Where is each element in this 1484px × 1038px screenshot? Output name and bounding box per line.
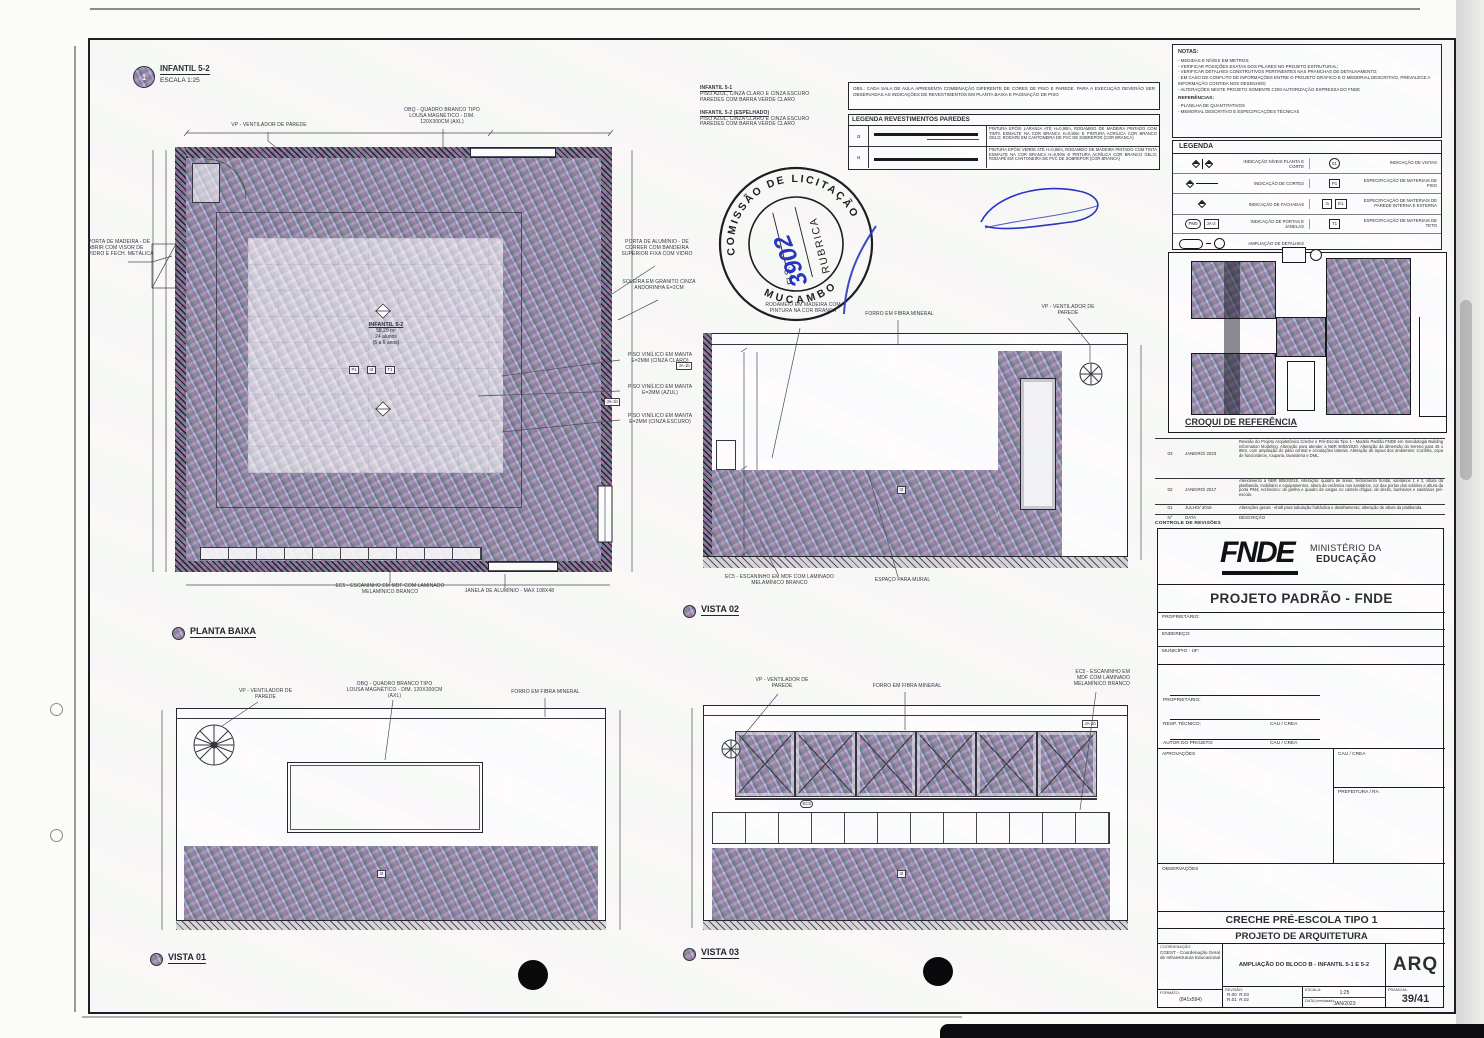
rev03-desc: Revisão do Projeto Arquitetônico Creche … [1237,439,1445,478]
vista02-ann-ec5: EC5 - ESCANINHO EM MDF COM LAMINADO MELA… [722,575,837,587]
legenda-row4-right: ESPECIFICAÇÃO DE MATERIAIS DE TETO [1359,219,1441,228]
vista02-label: VISTA 02 [701,604,739,616]
data-cell: DATA (mm/aaaa): JAN/2023 [1303,997,1386,1007]
vista01-ann-forro: FORRO EM FIBRA MINERAL [498,690,593,696]
plan-ref-chip: 1 [133,66,155,88]
sheet: 1 INFANTIL 5-2 ESCALA 1:25 JA-1b P1 I3 T… [0,0,1484,1038]
window-pane [1037,731,1097,797]
plan-ann-ec5: EC5 - ESCANINHO EM MDF COM LAMINADO MELA… [330,584,450,596]
plan-wall-right [601,147,612,572]
observations-area [1158,864,1445,912]
plan-ann-piso-azul: PISO VINÍLICO EM MANTA E=2mm (azul) [620,385,700,397]
approvals-area [1158,749,1445,864]
vista03-tag-ja1b: JA-1b [1082,720,1098,728]
level-marker-icon [1173,159,1231,169]
planta-baixa-label: PLANTA BAIXA [190,626,256,638]
vista01-ceiling-line [176,718,606,719]
sheet-subject: AMPLIAÇÃO DO BLOCO B - INFANTIL 5-1 E 5-… [1229,962,1379,968]
signature-area [1158,665,1445,749]
legenda-row5-left: AMPLIAÇÃO DE DETALHES [1231,241,1309,246]
prancha-label: PRANCHA: [1388,988,1408,992]
window-pane [976,731,1036,797]
proprietario2-label: PROPRIETÁRIO: [1163,698,1201,703]
croqui-title: CROQUI DE REFERÊNCIA [1183,417,1299,427]
vista01-chip [150,953,163,966]
binder-hole-bottom [50,829,63,842]
vista01-tag-i3: I3 [377,870,386,878]
vista02-door-glass [1020,378,1056,510]
scan-edge-left [74,46,76,1012]
teto-code: T1 [1329,219,1340,228]
vista01-wainscot [184,846,598,922]
ministry-line2: EDUCAÇÃO [1316,554,1376,565]
plan-ann-obq-3: 120x300cm (AxL) [392,120,492,126]
legenda-row-4: PM0JA-2 INDICAÇÃO DE PORTAS E JANELAS T1… [1173,215,1441,234]
vista02-tag-i3: I3 [897,486,906,494]
vista03-wainscot [712,848,1110,920]
vista02-bench [716,440,736,470]
approvals-split [1333,787,1445,788]
escala-cell: ESCALA: 1:25 [1303,986,1386,997]
croqui-left-spine [1224,261,1240,415]
window-pane [856,731,916,797]
swatch-bar [874,133,978,136]
legenda-revestimentos-title: LEGENDA REVESTIMENTOS PAREDES [849,115,1159,126]
legenda-row-1: INDICAÇÃO NÍVEIS PLANTA E CORTE 01 INDIC… [1173,154,1441,174]
prancha-cell: PRANCHA: 39/41 [1386,986,1445,1007]
porta-code: PM0 [1185,219,1200,228]
legenda-row2-left: INDICAÇÃO DE CORTES [1231,181,1309,186]
fnde-logo-bar [1222,571,1298,575]
formato-split [1158,989,1223,990]
plan-window-top [470,147,556,158]
legenda-row1-right: INDICAÇÃO DE VISTAS [1359,161,1441,166]
rev-row1-code: I3 [849,126,869,146]
croqui-boundary-h [1419,416,1447,417]
finish-note-1-line2: PAREDES COM BARRA VERDE CLARO [700,98,850,104]
plan-tag-teto: T1 [385,366,395,374]
legenda-row-2: INDICAÇÃO DE CORTES P1 ESPECIFICAÇÃO DE … [1173,174,1441,194]
prancha-value: 39/41 [1386,993,1445,1005]
punch-hole-left [518,960,548,990]
croqui-courtyard [1287,361,1315,411]
revision-row-01: 01 JULHO/ 2016 Alterações gerais - shaft… [1155,504,1445,514]
plan-tag-ja1b: JA-1b [604,398,620,406]
rev-row1-desc: PINTURA EPÓXI LARANJA ATÉ H=0,90m, RODAM… [987,126,1159,146]
plan-ann-porta-madeira: PORTA DE MADEIRA - DE ABRIR COM VISOR DE… [88,240,160,258]
legenda-row-5: AMPLIAÇÃO DE DETALHES [1173,234,1441,253]
legenda-row1-left: INDICAÇÃO NÍVEIS PLANTA E CORTE [1231,159,1309,169]
vista03-ceiling-line [703,715,1128,716]
revision-row-02: 02 JANEIRO/ 2017 Atendimento à NBR 9050/… [1155,478,1445,504]
vista02-floor [703,556,1128,568]
vista03-floor [703,920,1128,930]
finish-note-2-line2: PAREDES COM BARRA VERDE CLARO [700,122,850,128]
rev-row1-swatch [869,126,987,146]
rev-row2-desc: PINTURA EPÓXI VERDE ATÉ H=0,90m, RODAMEI… [987,147,1159,168]
vista01-ann-obq-2: LOUSA MAGNÉTICO - DIM. 120x300cm (AxL) [342,688,447,700]
rev-b: R.01 [1227,997,1237,1002]
escala-value: 1:25 [1303,990,1386,996]
referencias-title: REFERÊNCIAS: [1178,96,1436,101]
rev01-date: JULHO/ 2016 [1185,505,1237,514]
plan-ann-janela: JANELA DE ALUMÍNIO - MAX 108x48 [452,589,567,595]
scan-edge-right [1456,0,1484,1038]
cau-crea-1: CAU / CREA [1270,722,1297,727]
signature-line [1170,719,1320,720]
projeto-arquitetura-title: PROJETO DE ARQUITETURA [1158,929,1445,944]
formato-value: (841x594) [1158,997,1223,1003]
coordenacao-text: CGEST - Coordenação Geral de Infraestrut… [1158,949,1222,962]
rev02-desc: Atendimento à NBR 9050/2015. Alteração: … [1237,479,1445,504]
plan-ann-vp: VP - VENTILADOR DE PAREDE [213,123,325,129]
legenda-row2-right: ESPECIFICAÇÃO DE MATERIAIS DE PISO [1359,179,1441,188]
croqui-right-block [1326,258,1411,415]
window-pane [795,731,855,797]
vista03-chip [683,948,696,961]
legenda-box: LEGENDA INDICAÇÃO NÍVEIS PLANTA E CORTE … [1172,140,1442,250]
signature-line [1170,695,1320,696]
rev01-num: 01 [1155,505,1185,514]
pen-scribble [975,180,1115,250]
formato-label: FORMATO: [1160,991,1180,995]
proprietario-label: PROPRIETÁRIO: [1162,615,1200,620]
logo-banner: FNDE MINISTÉRIO DA EDUCAÇÃO [1158,529,1445,585]
punch-hole-right [923,957,953,986]
field-proprietario: PROPRIETÁRIO: [1158,613,1445,630]
vista01-ann-obq: OBQ - QUADRO BRANCO TIPO LOUSA MAGNÉTICO… [342,682,447,700]
ministry-line1: MINISTÉRIO DA [1310,543,1381,553]
view-number-icon: 01 [1309,158,1359,169]
revisions-table: 03 JANEIRO/ 2023 Revisão do Projeto Arqu… [1155,438,1445,520]
title-block: FNDE MINISTÉRIO DA EDUCAÇÃO PROJETO PADR… [1157,528,1444,1008]
vista02-left-wall [703,333,712,563]
swatch-line [927,139,979,140]
rev02-num: 02 [1155,479,1185,504]
binder-hole-top [50,703,63,716]
notas-item: - EM CASO DE CONFLITO DE INFORMAÇÕES ENT… [1178,75,1436,86]
referencias-item: - MEMORIAL DESCRITIVO E ESPECIFICAÇÕES T… [1178,109,1436,115]
vista02-chip [683,605,696,618]
rev03-num: 03 [1155,439,1185,478]
section-marker-icon [1173,181,1231,187]
cau-crea-3: CAU / CREA [1338,752,1365,757]
rev01-desc: Alterações gerais - shaft para tubulação… [1237,505,1445,514]
rev03-date: JANEIRO/ 2023 [1185,439,1237,478]
projeto-padrao-title: PROJETO PADRÃO - FNDE [1158,585,1445,613]
vista01-label: VISTA 01 [168,952,206,964]
window-pane [916,731,976,797]
plan-ref-scale: ESCALA 1:25 [160,77,200,84]
vista03-ann-ec5: EC5 - ESCANINHO EM MDF COM LAMINADO MELA… [1062,670,1130,688]
obs-text: OBS.: CADA SALA DE AULA APRESENTA COMBIN… [853,86,1155,97]
plan-cubby-strip [200,547,482,560]
aprovacoes-label: APROVAÇÕES [1162,752,1195,757]
janela-code: JA-2 [1204,219,1219,228]
scan-edge-bottom [82,1016,962,1018]
vista03-sill-line [735,798,1097,800]
plan-cabinet [192,163,220,203]
plan-ref-title: INFANTIL 5-2 [160,64,210,75]
croqui-watertank [1282,247,1306,263]
scanned-drawing-sheet: { "callouts": { "plan_ref_num": "1", "pl… [0,0,1484,1038]
legenda-row3-right: ESPECIFICAÇÃO DE MATERIAIS DE PAREDE INT… [1359,199,1441,208]
view-circle: 01 [1329,158,1340,169]
croqui-center-bar [1276,317,1326,357]
notas-box: NOTAS: - MEDIDAS E NÍVEIS EM METROS; - V… [1172,44,1442,138]
signature-line [1170,739,1320,740]
rev-c: R.02 [1239,997,1249,1002]
parede-ext-code: E1 [1335,199,1346,208]
facade-marker-icon [1173,201,1231,207]
vista03-tag-i3: I3 [897,870,906,878]
vista01-floor [176,920,606,930]
vista01-ann-vp: VP - VENTILADOR DE PAREDE [228,689,303,701]
plan-ann-porta-aluminio: PORTA DE ALUMÍNIO - DE CORRER COM BANDEI… [616,240,698,258]
vista02-ann-mural: ESPAÇO PARA MURAL [860,578,945,584]
plan-wall-left [175,147,186,572]
plan-inner-line [216,212,522,508]
plan-window-bottom [488,561,558,572]
vista03-ann-ec5-3: MELAMÍNICO BRANCO [1062,682,1130,688]
revision-cell: REVISÃO: R.00 R.03 R.01 R.02 [1223,986,1303,1007]
sheet-subject-cell: AMPLIAÇÃO DO BLOCO B - INFANTIL 5-1 E 5-… [1223,944,1386,986]
vista01-whiteboard-frame [290,765,480,830]
piso-code: P1 [1329,179,1340,188]
scan-smudge [1460,300,1472,480]
plan-ann-piso-claro: PISO VINÍLICO EM MANTA E=2mm (cinza clar… [620,353,700,365]
observacoes-label: OBSERVAÇÕES [1162,867,1198,872]
legenda-title: LEGENDA [1173,141,1441,154]
legenda-row-3: INDICAÇÃO DE FACHADAS I1E1 ESPECIFICAÇÃO… [1173,194,1441,215]
finish-notes: INFANTIL 5-1 PISO AZUL, CINZA CLARO E CI… [700,86,850,128]
room-ages: (5 a 6 anos) [338,340,434,346]
vista03-label: VISTA 03 [701,947,739,959]
cau-crea-2: CAU / CREA [1270,741,1297,746]
fnde-logo: FNDE [1220,536,1294,570]
vista03-ann-forro: FORRO EM FIBRA MINERAL [858,684,956,690]
creche-title: CRECHE PRÉ-ESCOLA TIPO 1 [1158,912,1445,929]
discipline-code: ARQ [1386,944,1445,986]
planta-baixa-chip [172,627,185,640]
obs-box: OBS.: CADA SALA DE AULA APRESENTA COMBIN… [848,82,1160,110]
data-value: JAN/2023 [1303,1001,1386,1007]
field-municipio: MUNICÍPIO - UF: [1158,647,1445,665]
notas-title: NOTAS: [1178,49,1436,55]
vista01-whiteboard [287,762,483,833]
vista02-wainscot [712,470,998,558]
coordination-cell: COORDENAÇÃO: CGEST - Coordenação Geral d… [1158,944,1223,1007]
rev-header-desc: DESCRIÇÃO [1237,515,1445,523]
croqui-box: CROQUI DE REFERÊNCIA [1168,252,1447,433]
plan-ann-obq: OBQ - QUADRO BRANCO TIPO LOUSA MAGNÉTICO… [392,108,492,126]
revisions-title: CONTROLE DE REVISÕES [1155,521,1221,526]
plan-tag-parede: I3 [367,366,376,374]
legenda-row4-left: INDICAÇÃO DE PORTAS E JANELAS [1231,219,1309,229]
vista03-tag-ec5: EC5 [800,800,813,808]
revision-row-03: 03 JANEIRO/ 2023 Revisão do Projeto Arqu… [1155,438,1445,478]
legenda-rev-row-1: I3 PINTURA EPÓXI LARANJA ATÉ H=0,90m, RO… [849,126,1159,147]
window-pane [735,731,795,797]
approvals-divider [1333,749,1334,864]
plan-room-label: INFANTIL 5-2 58,29 m² 24 alunos (5 a 6 a… [338,322,434,346]
door-window-marker-icon: PM0JA-2 [1173,219,1231,228]
prefeitura-label: PREFEITURA / RA [1338,790,1379,795]
autor-label: AUTOR DO PROJETO: [1163,741,1213,746]
vista03-window-band [735,731,1097,797]
detail-marker-icon [1173,238,1231,249]
legenda-row3-left: INDICAÇÃO DE FACHADAS [1231,202,1309,207]
municipio-label: MUNICÍPIO - UF: [1162,649,1199,654]
plan-ann-piso-escuro: PISO VINÍLICO EM MANTA E=2mm (cinza escu… [620,414,700,426]
notas-item: - ALTERAÇÕES NESTE PROJETO SOMENTE COM A… [1178,87,1436,93]
vista03-ann-vp: VP - VENTILADOR DE PAREDE [748,678,816,690]
vista03-cubby-row [712,812,1110,844]
scan-black-band [940,1024,1484,1038]
plan-ann-soleira: SOLEIRA EM GRANITO CINZA ANDORINHA E=2cm [622,280,696,292]
resp-tecnico-label: RESP. TÉCNICO: [1163,722,1201,727]
endereco-label: ENDEREÇO: [1162,632,1191,637]
vista02-ann-vp: VP - VENTILADOR DE PAREDE [1032,305,1104,317]
licitacao-stamp: COMISSÃO DE LICITAÇÃO MUCAMBO FLS. RUBRI… [696,146,896,346]
parede-int-code: I1 [1322,199,1332,208]
croqui-boundary-v [1419,317,1420,417]
croqui-watertank-circle [1310,249,1322,261]
plan-tag-piso: P1 [349,366,359,374]
rev02-date: JANEIRO/ 2017 [1185,479,1237,504]
scan-edge-top [90,8,1420,10]
field-endereco: ENDEREÇO: [1158,630,1445,647]
